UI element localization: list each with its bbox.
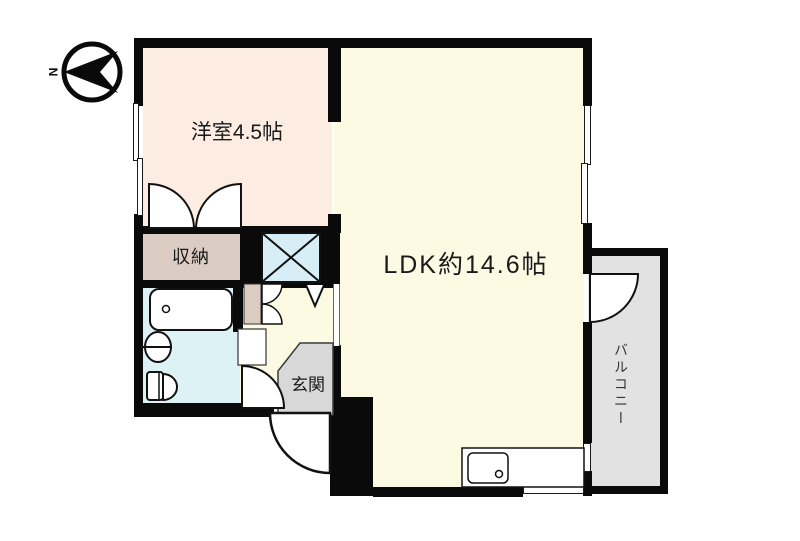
- door-mark-v: [306, 285, 324, 306]
- hall-closet-door-top: [262, 284, 282, 304]
- entrance-label: 玄関: [291, 371, 325, 396]
- storage-label: 収納: [172, 243, 210, 269]
- toilet: [147, 372, 177, 400]
- balcony-door-swing: [590, 274, 638, 322]
- ldk-label: LDK約14.6帖: [383, 245, 548, 281]
- balcony-label: バルコニー: [611, 343, 631, 428]
- washroom-door-leaf: [238, 329, 266, 365]
- shaft-box: [262, 233, 320, 282]
- compass-north-label: N: [46, 68, 60, 77]
- compass-north-icon: N: [46, 44, 120, 100]
- hall-closet-door-bottom: [262, 304, 282, 324]
- hall-closet: [244, 284, 261, 324]
- floor-plan: N: [0, 0, 800, 541]
- western-room-label: 洋室4.5帖: [191, 116, 283, 146]
- bathtub: [150, 289, 232, 330]
- front-door-swing: [270, 413, 330, 473]
- kitchen-sink: [468, 453, 508, 483]
- storage-door-left: [149, 184, 194, 228]
- storage-door-right: [196, 184, 241, 228]
- kitchen-counter: [462, 448, 584, 487]
- washbasin: [140, 332, 172, 362]
